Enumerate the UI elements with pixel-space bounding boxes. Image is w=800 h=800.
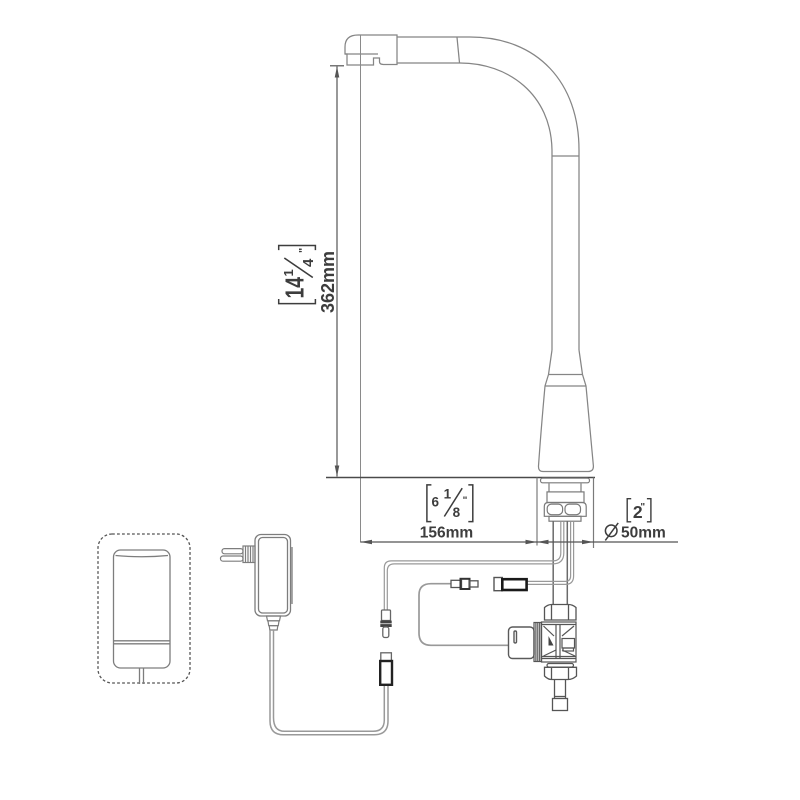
svg-text:14: 14: [279, 277, 309, 299]
svg-text:4: 4: [300, 258, 317, 267]
svg-text:1: 1: [281, 269, 296, 276]
svg-text:6: 6: [432, 495, 440, 510]
svg-text:": ": [463, 496, 468, 507]
svg-text:1: 1: [444, 486, 452, 501]
svg-text:8: 8: [453, 505, 461, 520]
svg-text:362mm: 362mm: [318, 251, 338, 313]
svg-text:": ": [297, 248, 309, 253]
svg-text:50mm: 50mm: [621, 525, 666, 542]
svg-text:156mm: 156mm: [420, 525, 473, 542]
svg-text:": ": [640, 502, 645, 513]
